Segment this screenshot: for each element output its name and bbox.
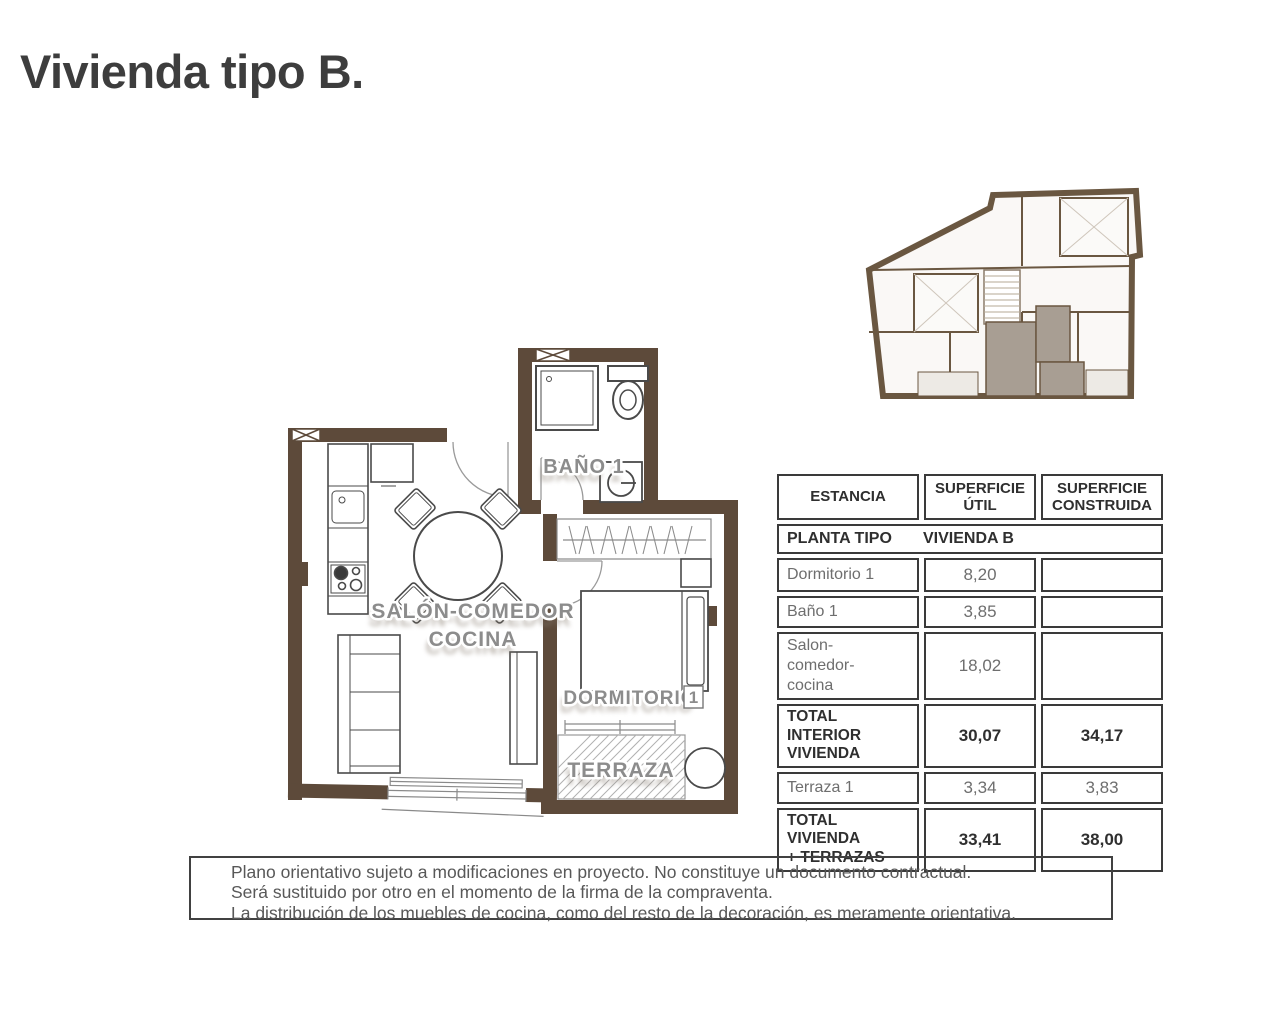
- row-util: 30,07: [924, 704, 1036, 768]
- stove: [331, 565, 365, 593]
- page-title: Vivienda tipo B.: [20, 44, 364, 99]
- stairs: [984, 270, 1020, 324]
- room-label-dormitorio: DORMITORIO: [563, 688, 696, 709]
- nightstand: [681, 559, 711, 587]
- sideboard: [510, 652, 537, 764]
- vivienda-b-label: VIVIENDA B: [923, 530, 1014, 548]
- shower: [536, 366, 598, 430]
- table-subheader-row: PLANTA TIPO VIVIENDA B: [777, 524, 1163, 554]
- planta-tipo-label: PLANTA TIPO: [787, 530, 892, 547]
- row-estancia: TOTAL INTERIOR VIVIENDA: [777, 704, 919, 768]
- sofa: [338, 635, 400, 773]
- disclaimer-line: La distribución de los muebles de cocina…: [231, 903, 1103, 923]
- room-label-salon-1: SALÓN-COMEDOR: [371, 599, 574, 623]
- building-locator-svg: [862, 182, 1154, 420]
- surface-table: ESTANCIA SUPERFICIE ÚTIL SUPERFICIE CONS…: [772, 470, 1168, 876]
- table-row: Baño 1 3,85: [777, 596, 1163, 628]
- table-row: Dormitorio 1 8,20: [777, 558, 1163, 592]
- room-label-salon-2: COCINA: [429, 628, 518, 651]
- row-construida: [1041, 596, 1163, 628]
- row-estancia: Terraza 1: [777, 772, 919, 804]
- toilet: [608, 366, 648, 419]
- table-header-row: ESTANCIA SUPERFICIE ÚTIL SUPERFICIE CONS…: [777, 474, 1163, 520]
- terrace-table: [685, 748, 725, 788]
- row-util: 3,85: [924, 596, 1036, 628]
- floor-plan-svg: BAÑO 1 SALÓN-COMEDOR COCINA DORMITORIO T…: [286, 340, 751, 835]
- row-construida: 3,83: [1041, 772, 1163, 804]
- col-header-superficie-construida: SUPERFICIE CONSTRUIDA: [1041, 474, 1163, 520]
- table-row: Terraza 1 3,34 3,83: [777, 772, 1163, 804]
- table-row: Salon- comedor- cocina 18,02: [777, 632, 1163, 700]
- disclaimer-box: Plano orientativo sujeto a modificacione…: [189, 856, 1113, 920]
- row-util: 8,20: [924, 558, 1036, 592]
- disclaimer-line: Será sustituido por otro en el momento d…: [231, 882, 1103, 902]
- room-label-terraza: TERRAZA: [567, 759, 674, 782]
- row-util: 18,02: [924, 632, 1036, 700]
- bed: [581, 591, 708, 691]
- row-util: 3,34: [924, 772, 1036, 804]
- row-estancia: Baño 1: [777, 596, 919, 628]
- floor-plan: BAÑO 1 SALÓN-COMEDOR COCINA DORMITORIO T…: [286, 340, 751, 835]
- disclaimer-line: Plano orientativo sujeto a modificacione…: [231, 862, 1103, 882]
- row-estancia: Dormitorio 1: [777, 558, 919, 592]
- table-row-total-interior: TOTAL INTERIOR VIVIENDA 30,07 34,17: [777, 704, 1163, 768]
- room-label-bano: BAÑO 1: [543, 455, 625, 478]
- col-header-estancia: ESTANCIA: [777, 474, 919, 520]
- row-construida: 34,17: [1041, 704, 1163, 768]
- planta-tipo-cell: PLANTA TIPO VIVIENDA B: [777, 524, 1163, 554]
- col-header-superficie-util: SUPERFICIE ÚTIL: [924, 474, 1036, 520]
- wardrobe: [557, 519, 711, 559]
- row-construida: [1041, 632, 1163, 700]
- surface-table-grid: ESTANCIA SUPERFICIE ÚTIL SUPERFICIE CONS…: [772, 470, 1168, 876]
- row-construida: [1041, 558, 1163, 592]
- room-label-dormitorio-num: 1: [689, 688, 699, 707]
- building-locator-map: [862, 182, 1154, 420]
- bedroom-window: [565, 720, 675, 734]
- salon-window: [382, 777, 545, 816]
- row-estancia: Salon- comedor- cocina: [777, 632, 919, 700]
